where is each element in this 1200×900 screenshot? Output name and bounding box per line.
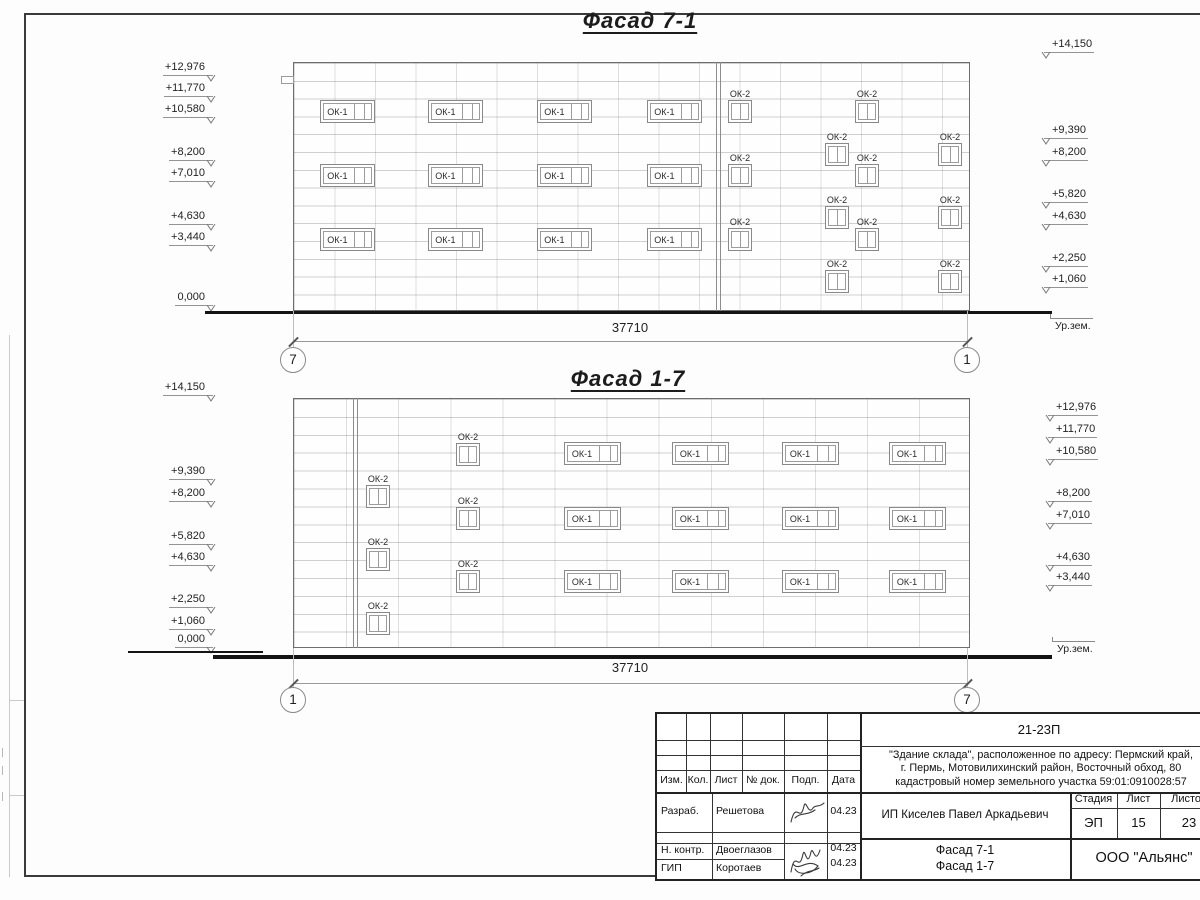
window-type-label: ОК-2 [940,195,960,205]
elevation-check-icon [1045,415,1055,422]
window-type-label: ОК-2 [730,217,750,227]
elevation-mark: +3,440 [1048,571,1092,586]
window-type-label: ОК-1 [565,514,599,524]
elevation-check-icon [206,181,216,188]
window-type-label: ОК-2 [940,132,960,142]
window-mullion [924,574,925,589]
facade-building [293,398,970,648]
window-type-label: ОК-1 [565,577,599,587]
window-mullion [837,147,838,162]
elevation-check-icon [206,160,216,167]
window-type-label: ОК-1 [890,514,924,524]
window-ok1: ОК-1 [672,442,729,465]
elevation-mark: +5,820 [169,530,213,545]
margin-divider [9,700,24,701]
elevation-check-icon [206,117,216,124]
window-mullion [462,232,463,247]
window-ok1: ОК-1 [889,570,946,593]
window-mullion [950,147,951,162]
elevation-mark: +12,976 [1048,401,1098,416]
rev-header-list: Лист [710,770,742,792]
window-type-label: ОК-2 [827,132,847,142]
window-mullion [571,232,572,247]
doc-code: 21-23П [860,714,1200,746]
window-ok2: ОК-2 [456,443,480,466]
window-mullion [472,104,473,119]
elevation-check-icon [206,75,216,82]
window-type-label: ОК-1 [673,449,707,459]
window-mullion [378,489,379,504]
dimension-label: 37710 [585,660,675,675]
expansion-joint [357,398,358,648]
window-ok2: ОК-2 [825,270,849,293]
axis-bubble: 7 [280,347,306,373]
elevation-check-icon [1045,437,1055,444]
elevation-mark: +4,630 [1048,551,1092,566]
rev-header-data: Дата [827,770,860,792]
window-type-label: ОК-1 [783,577,817,587]
window-mullion [867,104,868,119]
window-ok1: ОК-1 [647,164,702,187]
window-ok2: ОК-2 [728,164,752,187]
elevation-check-icon [206,96,216,103]
window-type-label: ОК-2 [940,259,960,269]
window-type-label: ОК-1 [321,107,354,117]
window-ok1: ОК-1 [564,570,621,593]
window-ok1: ОК-1 [428,228,483,251]
signer-date: 04.23 [827,856,860,872]
signature [785,842,827,879]
window-type-label: ОК-1 [783,514,817,524]
window-ok1: ОК-1 [647,228,702,251]
window-ok2: ОК-2 [456,507,480,530]
axis-bubble: 1 [280,687,306,713]
client-name: ИП Киселев Павел Аркадьевич [860,792,1070,838]
sheets-total: 23 [1160,808,1200,838]
elevation-check-icon [206,501,216,508]
elevation-mark: +9,390 [169,465,213,480]
signer-date: 04.23 [827,841,860,857]
signer-role: ГИП [657,859,712,879]
window-mullion [571,104,572,119]
window-ok1: ОК-1 [537,164,592,187]
window-mullion [691,168,692,183]
window-mullion [817,446,818,461]
window-type-label: ОК-1 [783,449,817,459]
elevation-check-icon [206,544,216,551]
window-ok1: ОК-1 [320,100,375,123]
window-type-label: ОК-1 [321,171,354,181]
expansion-joint [353,398,354,648]
elevation-mark: +14,150 [163,381,213,396]
elevation-mark: +9,390 [1044,124,1088,139]
elevation-mark: +11,770 [164,82,213,97]
elevation-mark: +4,630 [169,551,213,566]
margin-mark [2,748,3,757]
window-mullion [924,511,925,526]
window-mullion [707,511,708,526]
window-ok1: ОК-1 [782,570,839,593]
elevation-mark: +8,200 [169,146,213,161]
elevation-check-icon [206,224,216,231]
stage-header: Стадия [1070,792,1117,808]
window-type-label: ОК-1 [890,449,924,459]
facade-title: Фасад 7-1 [583,8,697,34]
window-mullion [828,511,829,526]
window-type-label: ОК-1 [673,577,707,587]
window-type-label: ОК-2 [730,153,750,163]
window-type-label: ОК-1 [565,449,599,459]
window-mullion [681,168,682,183]
window-ok2: ОК-2 [855,164,879,187]
window-ok1: ОК-1 [782,442,839,465]
ground-line [128,651,263,653]
elevation-check-icon [1045,585,1055,592]
window-ok1: ОК-1 [320,228,375,251]
elevation-check-icon [1045,501,1055,508]
signer-role: Н. контр. [657,843,712,859]
window-mullion [935,574,936,589]
elevation-check-icon [206,565,216,572]
window-mullion [950,210,951,225]
expansion-joint [720,62,721,311]
window-mullion [837,274,838,289]
signer-name: Решетова [712,792,784,832]
window-type-label: ОК-2 [368,601,388,611]
window-mullion [740,168,741,183]
window-mullion [837,210,838,225]
drawing-sheet: Фасад 7-1ОК-1ОК-1ОК-1ОК-1ОК-1ОК-1ОК-1ОК-… [0,0,1200,900]
window-mullion [581,232,582,247]
elevation-check-icon [1041,202,1051,209]
axis-bubble: 1 [954,347,980,373]
axis-bubble: 7 [954,687,980,713]
window-mullion [581,168,582,183]
ground-line [205,311,1052,314]
window-type-label: ОК-1 [538,107,571,117]
window-mullion [354,168,355,183]
window-ok2: ОК-2 [825,206,849,229]
window-ok2: ОК-2 [855,228,879,251]
window-ok1: ОК-1 [564,442,621,465]
window-mullion [472,168,473,183]
elevation-check-icon [1041,224,1051,231]
elevation-mark: +7,010 [169,167,213,182]
window-mullion [378,616,379,631]
window-mullion [599,446,600,461]
elevation-mark: +3,440 [169,231,213,246]
elevation-check-icon [1041,138,1051,145]
window-ok1: ОК-1 [428,164,483,187]
window-mullion [867,168,868,183]
rev-header-izm: Изм. [657,770,686,792]
elevation-check-icon [206,395,216,402]
elevation-mark: +2,250 [169,593,213,608]
elevation-mark: +1,060 [169,615,213,630]
window-mullion [462,168,463,183]
signer-name: Двоеглазов [712,843,784,859]
margin-divider [9,795,24,796]
window-type-label: ОК-2 [827,195,847,205]
stage-value: ЭП [1070,808,1117,838]
window-mullion [817,574,818,589]
window-type-label: ОК-1 [648,171,681,181]
window-type-label: ОК-2 [857,217,877,227]
canopy-tab [281,76,294,84]
sheet-header: Лист [1117,792,1160,808]
elevation-mark: +2,250 [1044,252,1088,267]
window-mullion [924,446,925,461]
elevation-check-icon [1045,523,1055,530]
window-mullion [707,574,708,589]
window-ok1: ОК-1 [889,507,946,530]
window-mullion [935,446,936,461]
window-mullion [364,168,365,183]
titleblock: Изм. Кол. Лист № док. Подп. Дата Разраб.… [655,712,1200,881]
elevation-mark: 0,000 [175,633,213,648]
window-ok1: ОК-1 [428,100,483,123]
elevation-mark: +11,770 [1048,423,1097,438]
window-type-label: ОК-2 [368,537,388,547]
window-ok1: ОК-1 [889,442,946,465]
window-mullion [935,511,936,526]
object-description: "Здание склада", расположенное по адресу… [864,747,1200,791]
elevation-mark: +7,010 [1048,509,1092,524]
window-type-label: ОК-1 [538,235,571,245]
elevation-mark: +14,150 [1044,38,1094,53]
window-mullion [691,232,692,247]
window-type-label: ОК-1 [321,235,354,245]
window-mullion [718,446,719,461]
elevation-mark: +10,580 [1048,445,1098,460]
window-mullion [681,104,682,119]
window-mullion [828,574,829,589]
window-type-label: ОК-2 [458,559,478,569]
signature [787,794,827,830]
elevation-check-icon [206,245,216,252]
elevation-mark: +8,200 [169,487,213,502]
window-mullion [468,447,469,462]
dimension-line [293,341,967,342]
window-type-label: ОК-1 [648,107,681,117]
window-type-label: ОК-1 [429,107,462,117]
window-type-label: ОК-1 [538,171,571,181]
facade-title: Фасад 1-7 [571,366,685,392]
elevation-mark: +1,060 [1044,273,1088,288]
window-mullion [378,552,379,567]
window-mullion [364,104,365,119]
elevation-check-icon [1045,459,1055,466]
window-mullion [610,511,611,526]
window-mullion [468,511,469,526]
window-mullion [718,511,719,526]
window-mullion [828,446,829,461]
window-ok2: ОК-2 [825,143,849,166]
window-mullion [867,232,868,247]
window-ok2: ОК-2 [938,206,962,229]
window-ok2: ОК-2 [728,100,752,123]
window-ok1: ОК-1 [537,100,592,123]
ground-level-label: Ур.зем. [1051,318,1093,332]
window-type-label: ОК-1 [890,577,924,587]
rev-header-podp: Подп. [784,770,827,792]
margin-mark [2,792,3,801]
signer-date: 04.23 [827,792,860,832]
elevation-check-icon [206,479,216,486]
window-type-label: ОК-1 [673,514,707,524]
window-type-label: ОК-2 [827,259,847,269]
sheet-number: 15 [1117,808,1160,838]
window-type-label: ОК-2 [458,432,478,442]
window-mullion [740,104,741,119]
rev-header-dok: № док. [742,770,784,792]
elevation-mark: +8,200 [1048,487,1092,502]
window-ok2: ОК-2 [938,143,962,166]
window-type-label: ОК-1 [429,235,462,245]
window-mullion [462,104,463,119]
window-mullion [817,511,818,526]
signer-name: Коротаев [712,859,784,879]
signer-role: Разраб. [657,792,712,832]
elevation-mark: +4,630 [1044,210,1088,225]
window-ok2: ОК-2 [728,228,752,251]
window-type-label: ОК-1 [648,235,681,245]
expansion-joint [716,62,717,311]
elevation-check-icon [1041,52,1051,59]
elevation-check-icon [1041,287,1051,294]
window-ok1: ОК-1 [672,507,729,530]
window-mullion [472,232,473,247]
window-ok1: ОК-1 [647,100,702,123]
elevation-mark: +10,580 [163,103,213,118]
window-mullion [468,574,469,589]
window-mullion [681,232,682,247]
window-type-label: ОК-2 [458,496,478,506]
window-mullion [740,232,741,247]
window-ok2: ОК-2 [938,270,962,293]
window-mullion [950,274,951,289]
elevation-mark: +5,820 [1044,188,1088,203]
rev-header-kol: Кол. [686,770,710,792]
organization-name: ООО "Альянс" [1070,838,1200,879]
window-mullion [707,446,708,461]
window-ok2: ОК-2 [366,548,390,571]
window-ok1: ОК-1 [537,228,592,251]
dimension-label: 37710 [585,320,675,335]
window-ok2: ОК-2 [366,485,390,508]
margin-mark [2,766,3,775]
window-mullion [691,104,692,119]
elevation-mark: +12,976 [163,61,213,76]
window-mullion [718,574,719,589]
window-type-label: ОК-2 [368,474,388,484]
sheet-title: Фасад 7-1 Фасад 1-7 [860,838,1070,879]
elevation-mark: 0,000 [175,291,213,306]
window-mullion [354,232,355,247]
window-mullion [610,574,611,589]
window-mullion [599,574,600,589]
window-mullion [571,168,572,183]
dimension-line [293,683,967,684]
elevation-mark: +8,200 [1044,146,1088,161]
window-ok1: ОК-1 [564,507,621,530]
elevation-check-icon [206,607,216,614]
window-type-label: ОК-2 [857,89,877,99]
window-mullion [364,232,365,247]
window-mullion [610,446,611,461]
window-ok2: ОК-2 [366,612,390,635]
elevation-check-icon [1041,160,1051,167]
window-ok1: ОК-1 [782,507,839,530]
window-mullion [599,511,600,526]
ground-level-label: Ур.зем. [1053,641,1095,655]
ground-line [213,655,1052,659]
elevation-check-icon [1041,266,1051,273]
window-ok2: ОК-2 [456,570,480,593]
window-ok2: ОК-2 [855,100,879,123]
window-ok1: ОК-1 [320,164,375,187]
window-mullion [581,104,582,119]
window-ok1: ОК-1 [672,570,729,593]
sheets-total-header: Листов [1160,792,1200,808]
window-type-label: ОК-2 [730,89,750,99]
elevation-mark: +4,630 [169,210,213,225]
window-type-label: ОК-1 [429,171,462,181]
window-mullion [354,104,355,119]
window-type-label: ОК-2 [857,153,877,163]
